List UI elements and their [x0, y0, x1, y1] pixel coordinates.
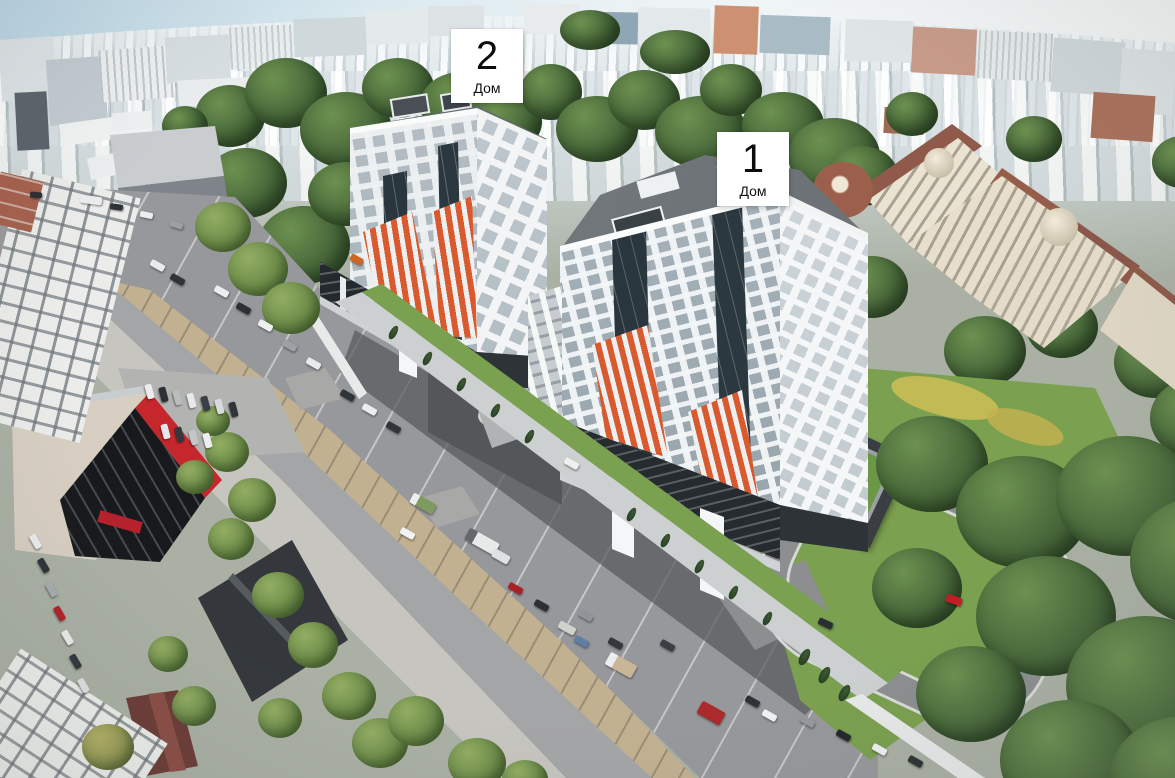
label-building-1: 1 Дом [717, 132, 789, 206]
label-1-caption: Дом [739, 183, 766, 199]
aerial-photo: 2 Дом 1 Дом [0, 0, 1175, 778]
label-building-2: 2 Дом [451, 29, 523, 103]
label-1-number: 1 [742, 139, 764, 179]
photo-vignette [0, 0, 1175, 778]
label-2-number: 2 [476, 36, 498, 76]
label-2-caption: Дом [473, 80, 500, 96]
